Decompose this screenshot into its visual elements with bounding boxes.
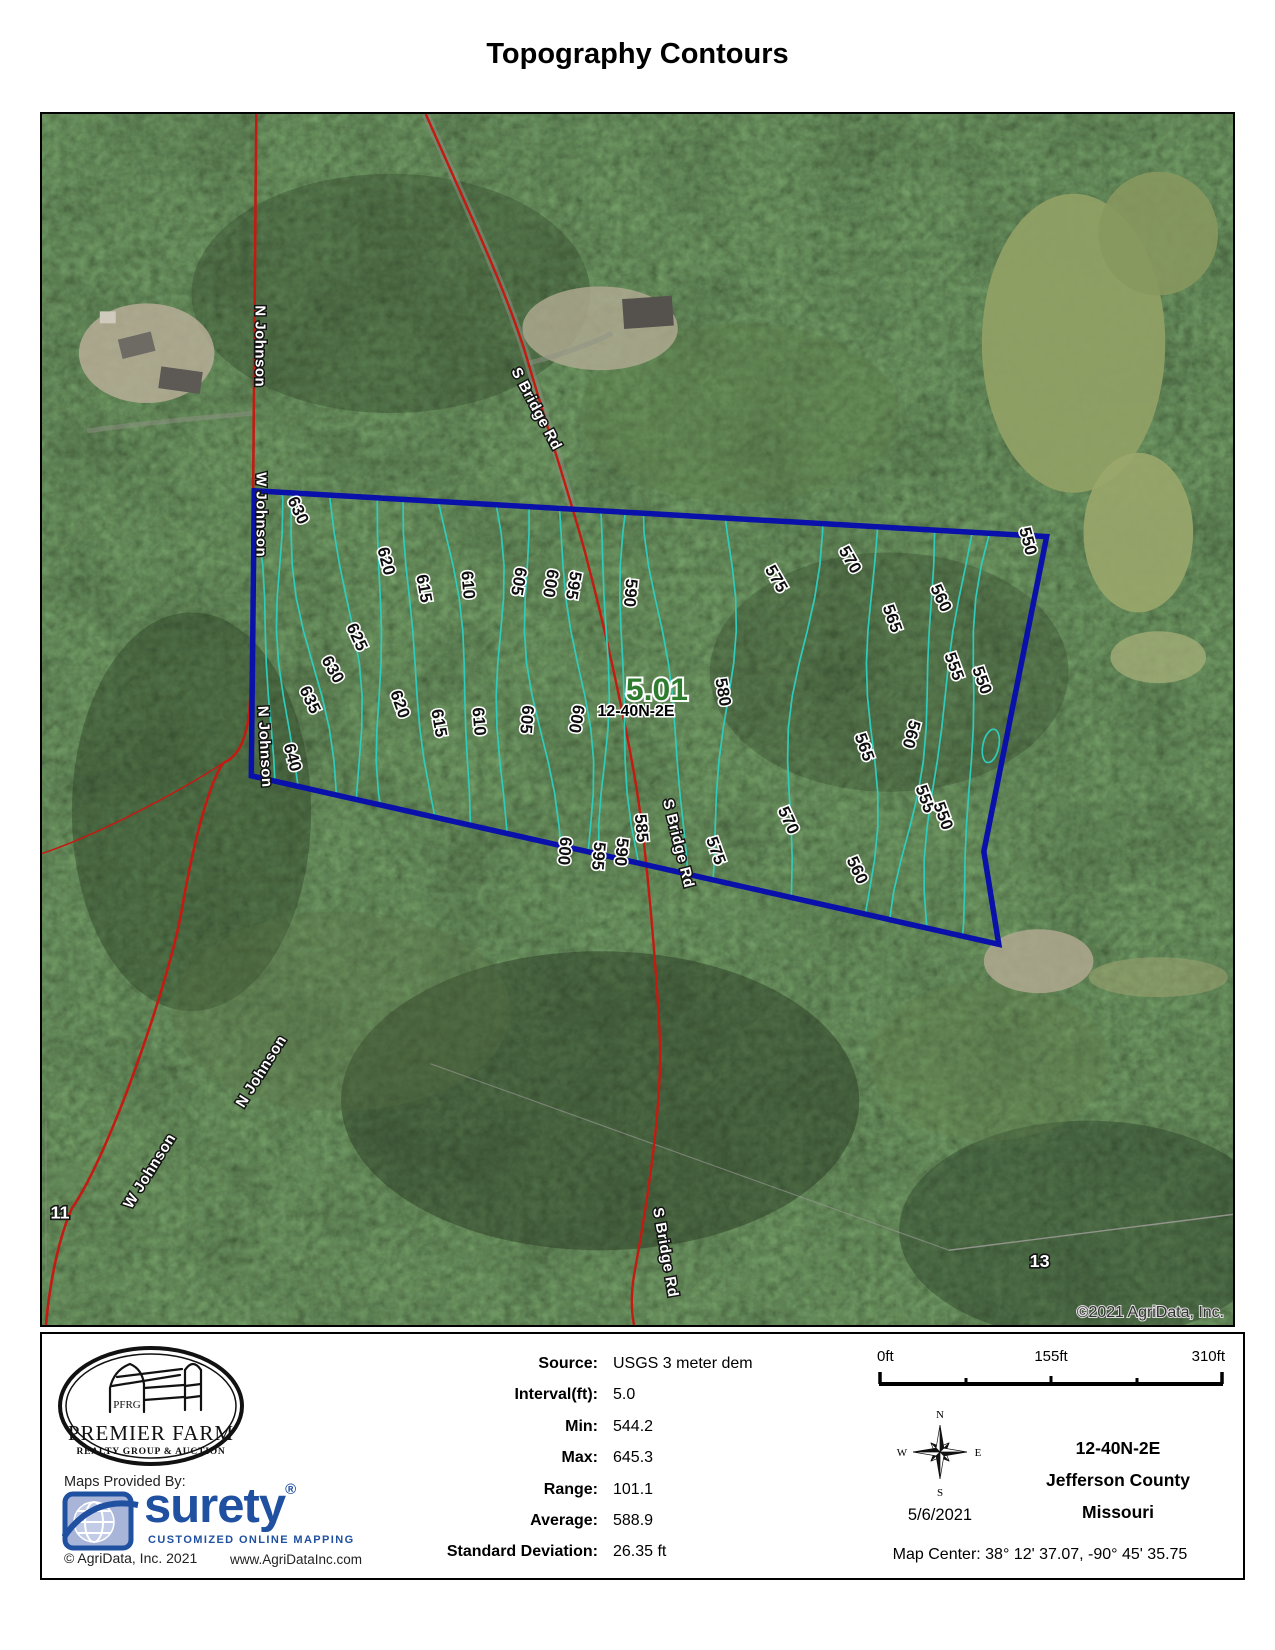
contour-label-590: 590 — [611, 837, 632, 867]
compass-rose: N E S W — [894, 1406, 986, 1498]
contour-label-610: 610 — [457, 570, 478, 600]
scale-label-max: 310ft — [1192, 1348, 1225, 1365]
stat-label: Min: — [302, 1411, 598, 1442]
location-block: 12-40N-2E Jefferson County Missouri — [998, 1432, 1238, 1528]
compass-star-point — [936, 1452, 940, 1479]
contour-label-590: 590 — [620, 578, 641, 608]
contour-label-605: 605 — [516, 705, 537, 735]
page-title: Topography Contours — [0, 38, 1275, 71]
stat-label: Source: — [302, 1348, 598, 1379]
contour-label-585: 585 — [631, 813, 652, 843]
surety-wordmark: surety® — [144, 1482, 295, 1531]
compass-star-point — [913, 1452, 940, 1456]
stat-value: 26.35 ft — [613, 1536, 666, 1567]
compass-star-point — [913, 1448, 940, 1452]
pfrg-initials: PFRG — [113, 1399, 141, 1411]
building-roof — [100, 311, 116, 323]
road-label: N Johnson — [251, 305, 268, 387]
contour-label-610: 610 — [468, 707, 489, 737]
section-number-11: 11 — [50, 1202, 69, 1222]
map-center-coordinates: Map Center: 38° 12' 37.07, -90° 45' 35.7… — [760, 1546, 1275, 1564]
stat-row: Source:USGS 3 meter dem — [302, 1348, 862, 1379]
scale-label-0: 0ft — [877, 1348, 894, 1365]
state-name: Missouri — [998, 1496, 1238, 1528]
compass-e: E — [975, 1447, 982, 1459]
agridata-copyright: © AgriData, Inc. 2021 — [64, 1550, 197, 1566]
compass-star-point — [936, 1425, 940, 1452]
stat-value: USGS 3 meter dem — [613, 1348, 753, 1379]
compass-s: S — [937, 1487, 943, 1498]
stat-row: Interval(ft):5.0 — [302, 1379, 862, 1410]
stat-row: Range:101.1 — [302, 1474, 862, 1505]
scale-bar-rule — [877, 1370, 1225, 1388]
county-name: Jefferson County — [998, 1464, 1238, 1496]
report-page: Topography Contours — [0, 0, 1275, 1650]
compass-star-point — [940, 1425, 944, 1452]
stat-value: 5.0 — [613, 1379, 635, 1410]
aerial-map: 12-40N-2E 5.01 ©2021 AgriData, Inc. 6306… — [40, 112, 1235, 1327]
stat-value: 645.3 — [613, 1442, 653, 1473]
contour-label-595: 595 — [588, 841, 609, 871]
building-roof — [622, 296, 674, 329]
scale-label-mid: 155ft — [1034, 1348, 1067, 1365]
compass-n: N — [936, 1409, 944, 1421]
elevation-stats: Source:USGS 3 meter demInterval(ft):5.0M… — [302, 1348, 862, 1568]
stat-row: Max:645.3 — [302, 1442, 862, 1473]
scale-bar-labels: 0ft 155ft 310ft — [877, 1348, 1225, 1370]
stat-value: 544.2 — [613, 1411, 653, 1442]
compass-star-point — [940, 1452, 944, 1479]
compass-w: W — [897, 1447, 908, 1459]
stat-value: 588.9 — [613, 1505, 653, 1536]
road-label: W Johnson — [252, 472, 269, 557]
stat-label: Range: — [302, 1474, 598, 1505]
scale-bar: 0ft 155ft 310ft — [877, 1348, 1225, 1408]
footer-panel: PFRG PREMIER FARM REALTY GROUP & AUCTION… — [40, 1332, 1245, 1580]
surety-globe-icon — [62, 1490, 140, 1552]
stat-value: 101.1 — [613, 1474, 653, 1505]
map-date: 5/6/2021 — [878, 1506, 1002, 1525]
contour-label-600: 600 — [554, 836, 575, 866]
stat-label: Max: — [302, 1442, 598, 1473]
surety-reg-mark: ® — [285, 1481, 295, 1498]
pfrg-logo: PFRG PREMIER FARM REALTY GROUP & AUCTION — [56, 1344, 246, 1468]
map-copyright: ©2021 AgriData, Inc. — [1077, 1304, 1224, 1321]
compass-star-icon — [913, 1425, 967, 1479]
surety-name: surety — [144, 1479, 285, 1533]
pfrg-name: PREMIER FARM — [68, 1421, 234, 1445]
stat-label: Average: — [302, 1505, 598, 1536]
stat-row: Average:588.9 — [302, 1505, 862, 1536]
section-number-13: 13 — [1030, 1251, 1050, 1271]
stat-label: Standard Deviation: — [302, 1536, 598, 1567]
stat-row: Min:544.2 — [302, 1411, 862, 1442]
parcel-acres-label: 5.01 — [626, 671, 688, 707]
township-range-section: 12-40N-2E — [998, 1432, 1238, 1464]
compass-star-point — [940, 1448, 967, 1452]
compass-star-point — [940, 1452, 967, 1456]
map-canvas: 12-40N-2E 5.01 ©2021 AgriData, Inc. 6306… — [42, 114, 1233, 1325]
stat-label: Interval(ft): — [302, 1379, 598, 1410]
pfrg-tagline: REALTY GROUP & AUCTION — [76, 1447, 225, 1457]
